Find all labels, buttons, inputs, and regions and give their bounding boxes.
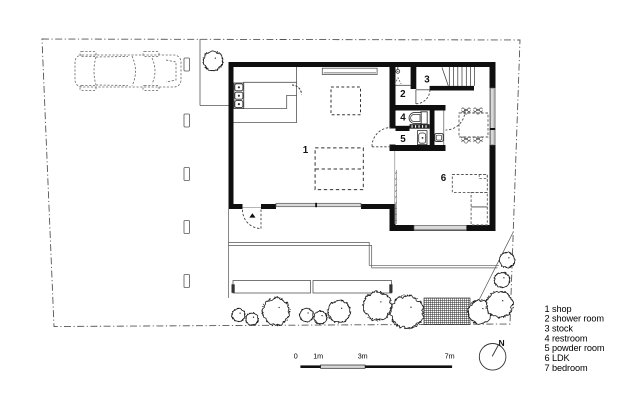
svg-text:1m: 1m — [313, 351, 323, 360]
svg-text:3: 3 — [424, 75, 430, 86]
svg-text:1: 1 — [303, 145, 309, 156]
svg-text:6 LDK: 6 LDK — [545, 353, 571, 363]
svg-text:N: N — [499, 338, 505, 348]
svg-text:7 bedroom: 7 bedroom — [545, 363, 588, 373]
svg-text:5: 5 — [400, 134, 406, 145]
svg-text:1 shop: 1 shop — [545, 304, 572, 314]
svg-text:3 stock: 3 stock — [545, 324, 574, 334]
svg-text:5 powder room: 5 powder room — [545, 343, 605, 353]
svg-text:2 shower room: 2 shower room — [545, 314, 605, 324]
svg-text:0: 0 — [294, 351, 298, 360]
svg-text:6: 6 — [441, 173, 447, 184]
svg-text:7m: 7m — [445, 351, 455, 360]
svg-text:4 restroom: 4 restroom — [545, 333, 588, 343]
svg-text:2: 2 — [400, 89, 406, 100]
svg-text:4: 4 — [400, 112, 406, 123]
svg-text:3m: 3m — [358, 351, 368, 360]
